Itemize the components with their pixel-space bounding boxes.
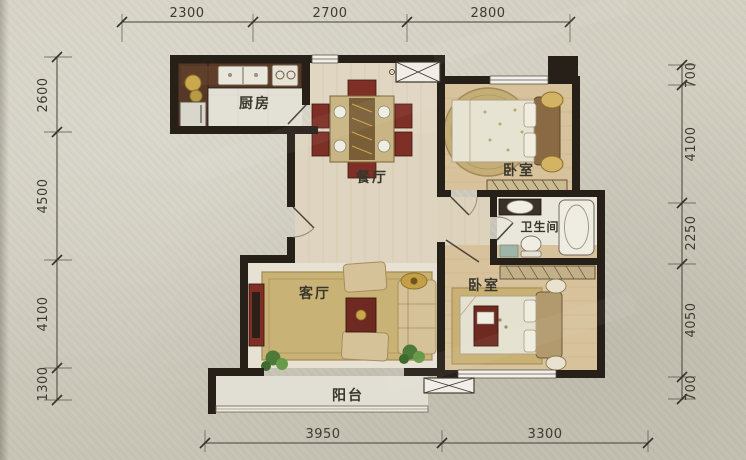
balcony-railing	[216, 406, 428, 412]
nightstand	[541, 156, 563, 172]
window-icon	[312, 55, 338, 63]
dim-label: 2250	[684, 215, 699, 250]
dim-label: 4500	[36, 178, 51, 213]
kitchen-label: 厨房	[239, 95, 271, 111]
dim-label: 2800	[470, 6, 505, 21]
wardrobe	[500, 266, 595, 279]
fridge-icon	[180, 102, 206, 127]
balcony-label: 阳台	[332, 387, 364, 403]
ac-platform-icon	[424, 378, 474, 393]
nightstand	[541, 92, 563, 108]
wash-basin	[507, 201, 533, 214]
armchair	[341, 331, 388, 361]
bath-mat	[500, 245, 518, 257]
dim-label: 2700	[312, 6, 347, 21]
dimension-left: 2600 4500 4100 1300	[36, 52, 72, 405]
dimension-right: 700 4100 2250 4050 700	[668, 60, 699, 404]
plates-icon	[185, 75, 201, 91]
bathroom-label: 卫生间	[520, 219, 559, 234]
tv-icon	[252, 292, 260, 338]
floor-plan-svg: 厨房 餐厅 卧室 卫生间 客厅 卧室 阳台 2300 2700 2800	[0, 0, 746, 460]
dim-label: 2600	[36, 77, 51, 112]
pillow	[524, 103, 536, 127]
sofa-icon	[398, 280, 436, 354]
dim-label: 700	[684, 62, 699, 88]
dim-label: 700	[684, 375, 699, 401]
nightstand	[546, 279, 566, 293]
toilet-icon	[521, 236, 541, 252]
floor-plan-image: 厨房 餐厅 卧室 卫生间 客厅 卧室 阳台 2300 2700 2800	[0, 0, 746, 460]
dining-chair	[348, 80, 376, 97]
window-icon	[458, 370, 556, 378]
dim-label: 2300	[169, 6, 204, 21]
dim-label: 4100	[36, 296, 51, 331]
dim-label: 3950	[305, 427, 340, 442]
bedroom-top-label: 卧室	[503, 162, 535, 178]
dim-label: 1300	[36, 366, 51, 401]
armchair	[343, 262, 387, 293]
pillow	[524, 133, 536, 157]
dim-label: 4050	[684, 302, 699, 337]
bedroom-bottom-label: 卧室	[468, 277, 500, 293]
living-label: 客厅	[298, 285, 331, 301]
pillow	[524, 300, 536, 322]
nightstand	[546, 356, 566, 370]
dimension-bottom: 3950 3300	[200, 427, 653, 452]
window-icon	[490, 76, 548, 84]
duct-icon	[390, 62, 441, 82]
dining-label: 餐厅	[355, 169, 388, 185]
dining-chair	[395, 132, 412, 156]
living-furniture	[249, 262, 436, 371]
dim-label: 4100	[684, 126, 699, 161]
dim-label: 3300	[527, 427, 562, 442]
